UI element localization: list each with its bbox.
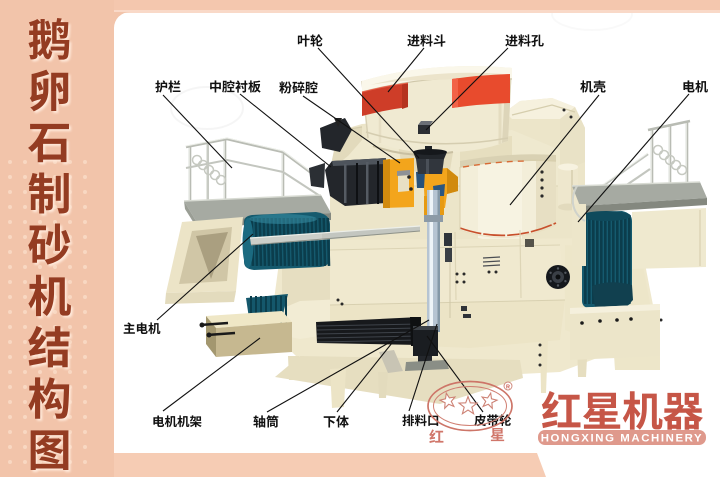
svg-text:HONGXING MACHINERY: HONGXING MACHINERY [541, 433, 704, 445]
svg-text:R: R [506, 385, 510, 391]
